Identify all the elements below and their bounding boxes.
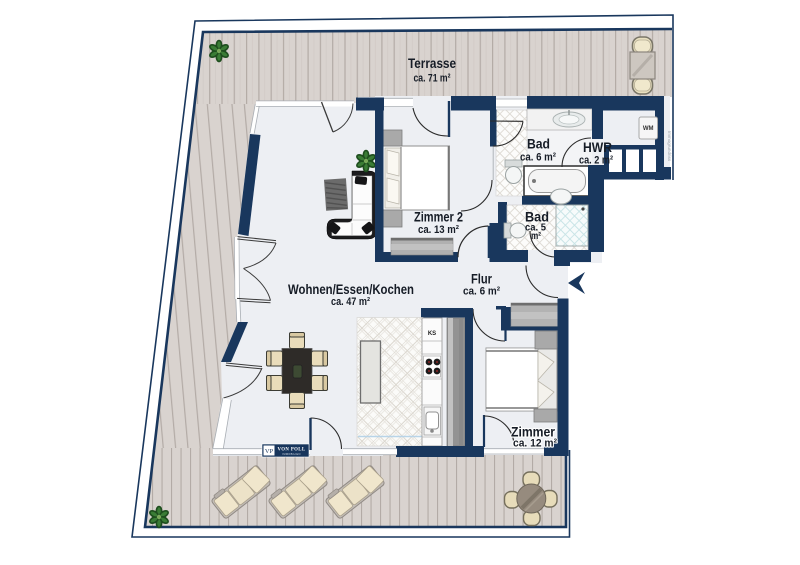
- svg-text:ca. 6 m²: ca. 6 m²: [520, 152, 556, 164]
- svg-text:VON POLL: VON POLL: [277, 448, 305, 453]
- svg-text:ca. 13 m²: ca. 13 m²: [418, 224, 459, 236]
- svg-text:Wohnen/Essen/Kochen: Wohnen/Essen/Kochen: [288, 281, 414, 297]
- svg-text:IMMOBILIEN: IMMOBILIEN: [282, 452, 300, 456]
- svg-text:Flur: Flur: [471, 272, 493, 287]
- svg-text:Bad: Bad: [527, 137, 550, 152]
- svg-text:ca. 47 m²: ca. 47 m²: [331, 296, 370, 308]
- svg-text:m²: m²: [531, 230, 541, 242]
- svg-text:ca. 71 m²: ca. 71 m²: [414, 73, 451, 85]
- svg-text:ca. 12 m²: ca. 12 m²: [513, 438, 557, 450]
- svg-text:WM: WM: [643, 126, 654, 132]
- svg-text:HWR: HWR: [583, 140, 612, 155]
- svg-text:VP: VP: [265, 448, 274, 455]
- svg-text:ca. 6 m²: ca. 6 m²: [463, 286, 500, 298]
- svg-text:Terrasse: Terrasse: [408, 56, 456, 71]
- svg-text:ca. 2 m²: ca. 2 m²: [579, 155, 613, 167]
- svg-text:Immogrundriss: Immogrundriss: [667, 131, 672, 162]
- svg-text:Zimmer 2: Zimmer 2: [414, 210, 463, 225]
- svg-text:KS: KS: [428, 331, 436, 337]
